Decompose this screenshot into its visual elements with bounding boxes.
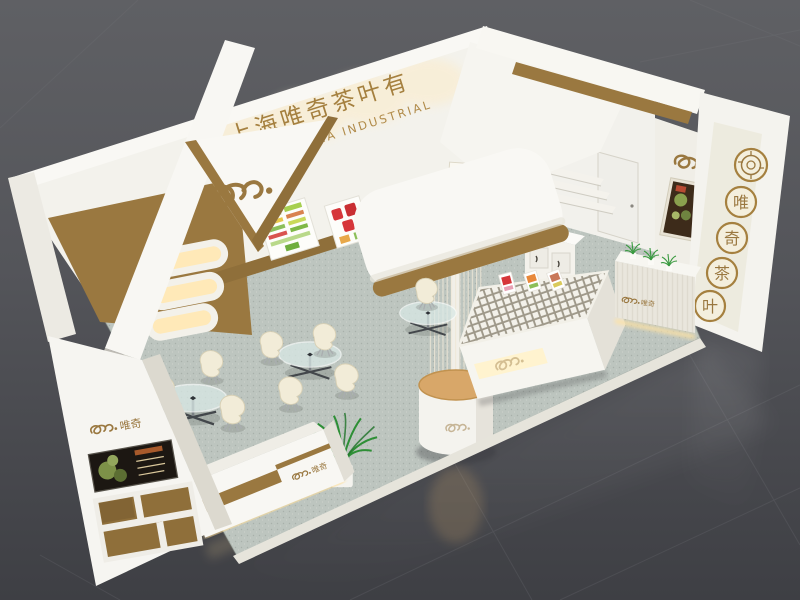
booth-render: wa.唯奇 上海唯奇茶叶有 SHANGHAI TEA INDUSTRIAL <box>0 0 800 600</box>
medallion-4: 叶 <box>695 291 725 321</box>
medallion-3: 茶 <box>707 258 737 288</box>
svg-text:茶: 茶 <box>714 264 730 283</box>
chair <box>279 377 303 413</box>
medallion-1: 唯 <box>726 187 756 217</box>
glass-table-2 <box>279 342 341 380</box>
door-handle <box>630 204 633 207</box>
svg-text:唯: 唯 <box>733 193 749 212</box>
medallion-seal <box>735 149 767 181</box>
right-counter-logo-cn: 唯奇 <box>640 298 655 308</box>
chair <box>335 364 359 400</box>
chair <box>220 395 245 432</box>
svg-text:奇: 奇 <box>724 229 740 248</box>
pillar-shelf-recess <box>96 484 201 560</box>
chair <box>200 351 223 385</box>
medallion-2: 奇 <box>717 223 747 253</box>
chair <box>260 332 283 366</box>
svg-text:叶: 叶 <box>702 297 718 316</box>
chair <box>313 324 336 358</box>
chair <box>416 278 438 311</box>
